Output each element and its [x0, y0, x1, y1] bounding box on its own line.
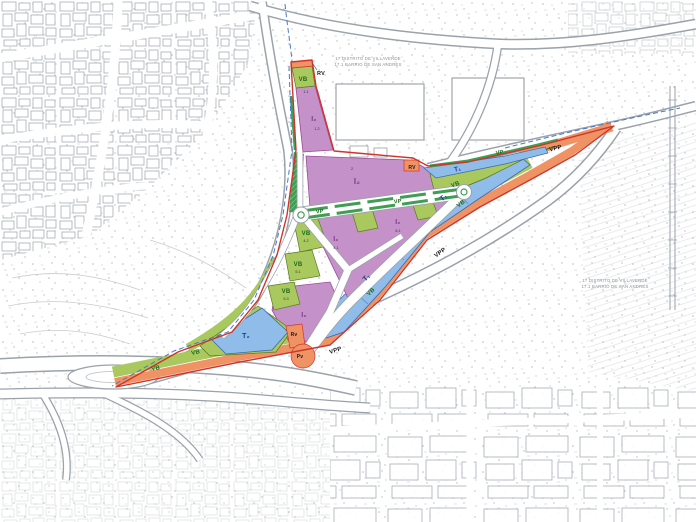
code-2: 2	[351, 167, 353, 171]
code-4-2: 4.2	[303, 239, 308, 243]
basemap-industrial-bottom	[330, 386, 696, 522]
label-rv-mid: RV	[408, 165, 416, 171]
label-i2-main: I₂	[354, 177, 360, 186]
label-vb-col1: VB	[302, 231, 311, 237]
district-note-top-line1: 17 DISTRITO DE VILLAVERDE	[335, 56, 401, 61]
code-4-1: 4.1	[333, 246, 338, 250]
label-vb-top: VB	[299, 77, 308, 83]
label-t1-upper: T₁	[454, 165, 462, 173]
label-pv: Pv	[297, 354, 304, 360]
basemap-blocks-bottomleft	[0, 400, 330, 522]
label-rv-top: RV	[317, 71, 325, 77]
code-1-1: 1.1	[303, 90, 308, 94]
district-note-right-line2: 17.1 BARRIO DE SAN ANDRES	[581, 284, 648, 289]
plan-canvas: RV VB 1.1 I₂ 1.2 2 I₂ RV T₁ VP VB VP VP …	[0, 0, 696, 522]
label-rv-small: Rv	[291, 332, 298, 338]
label-vb-col3: VB	[282, 289, 291, 295]
label-vp-blvd-1: VP	[316, 208, 325, 215]
code-1-2: 1.2	[314, 127, 319, 131]
label-vb-col2: VB	[294, 262, 303, 268]
district-note-right-line1: 17 DISTRITO DE VILLAVERDE	[582, 278, 648, 283]
label-i2-lower: I₂	[301, 312, 306, 319]
district-note-top-line2: 17.1 BARRIO DE SAN ANDRES	[334, 62, 401, 67]
label-i2-fan-a: I₂	[333, 236, 338, 243]
label-i2-wedge: I₂	[311, 116, 316, 123]
code-5-1: 5.1	[295, 270, 300, 274]
code-6-1: 6.1	[395, 229, 400, 233]
label-i2-fan-b: I₂	[395, 219, 400, 226]
label-vp-blvd-2: VP	[394, 198, 403, 205]
label-t2: T₂	[242, 333, 250, 340]
zoning-plan-map: RV VB 1.1 I₂ 1.2 2 I₂ RV T₁ VP VB VP VP …	[0, 0, 696, 522]
code-5-3: 5.3	[283, 297, 288, 301]
